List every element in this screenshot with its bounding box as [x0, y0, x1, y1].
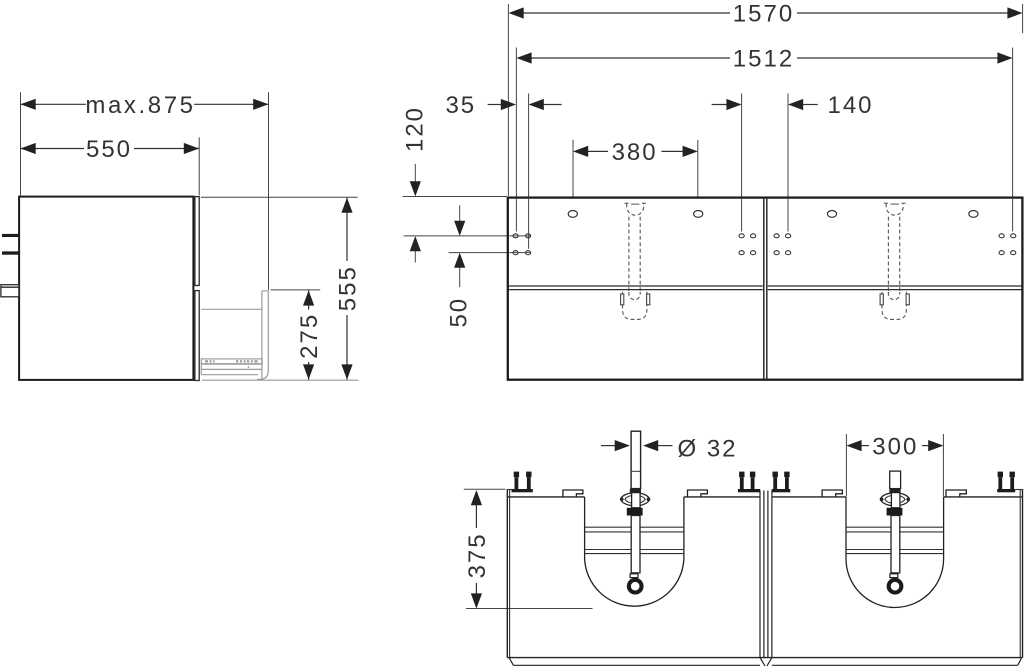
- svg-text:Ø 32: Ø 32: [677, 435, 737, 462]
- svg-text:275: 275: [296, 313, 323, 359]
- svg-text:1570: 1570: [733, 1, 794, 28]
- svg-text:50: 50: [446, 297, 473, 328]
- svg-text:120: 120: [402, 106, 429, 152]
- svg-text:max.875: max.875: [85, 92, 195, 119]
- svg-text:380: 380: [612, 139, 658, 166]
- svg-text:1512: 1512: [733, 46, 794, 73]
- svg-text:140: 140: [827, 92, 873, 119]
- svg-text:550: 550: [86, 136, 132, 163]
- svg-text:35: 35: [445, 92, 476, 119]
- svg-text:555: 555: [335, 265, 362, 311]
- svg-text:300: 300: [872, 433, 918, 460]
- svg-text:375: 375: [464, 532, 491, 578]
